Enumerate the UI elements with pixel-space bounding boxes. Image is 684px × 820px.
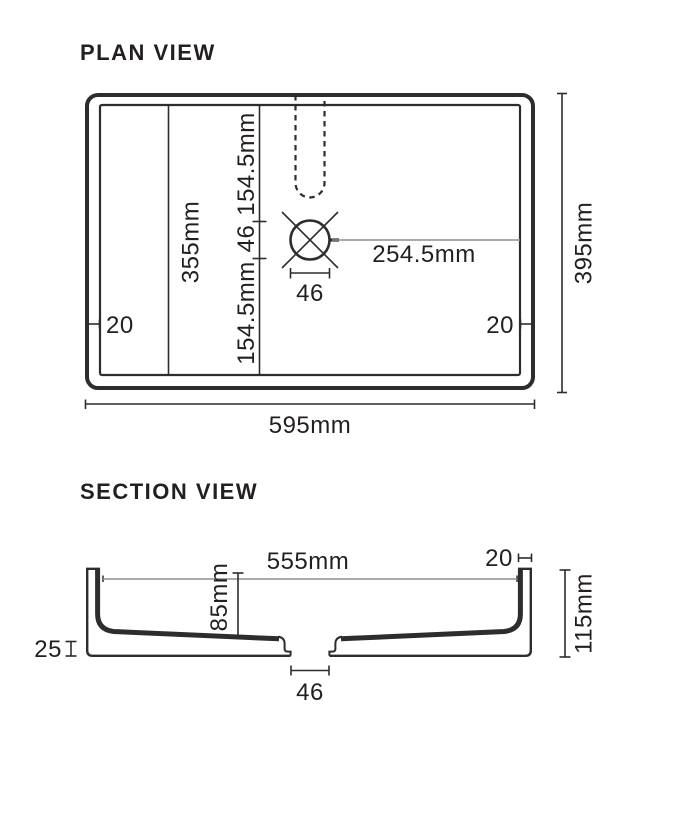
section-height-label: 115mm (571, 573, 598, 654)
section-rim-label: 20 (485, 545, 513, 572)
section-drain-step-left (278, 637, 291, 656)
plan-width-label: 395mm (571, 202, 598, 285)
plan-inner-width-label: 355mm (178, 201, 205, 284)
plan-upper-offset-label: 154.5mm (233, 112, 260, 216)
plan-lower-offset-label: 154.5mm (233, 261, 260, 365)
drawing-svg: PLAN VIEW (0, 0, 684, 820)
section-view: SECTION VIEW (34, 479, 597, 706)
plan-right-wall-label: 20 (486, 312, 514, 339)
section-drain-label: 46 (296, 679, 324, 706)
plan-left-wall-label: 20 (106, 312, 134, 339)
section-base-label: 25 (34, 636, 62, 663)
section-view-title: SECTION VIEW (80, 479, 258, 504)
technical-drawing-page: PLAN VIEW (0, 0, 684, 820)
plan-tap-dashed-outline (296, 95, 325, 198)
section-outer-profile-right (329, 569, 530, 656)
section-inner-width-label: 555mm (267, 548, 350, 575)
plan-view-title: PLAN VIEW (80, 40, 216, 65)
section-drain-step-right (329, 637, 342, 656)
section-depth-label: 85mm (206, 563, 233, 632)
plan-length-label: 595mm (269, 412, 352, 439)
plan-hole-to-wall-label: 254.5mm (372, 241, 476, 268)
section-outer-profile-left (87, 569, 290, 656)
plan-view: PLAN VIEW (80, 40, 598, 439)
plan-hole-width-label: 46 (296, 280, 324, 307)
section-basin-profile (87, 569, 531, 656)
plan-hole-diameter-label: 46 (233, 225, 260, 253)
